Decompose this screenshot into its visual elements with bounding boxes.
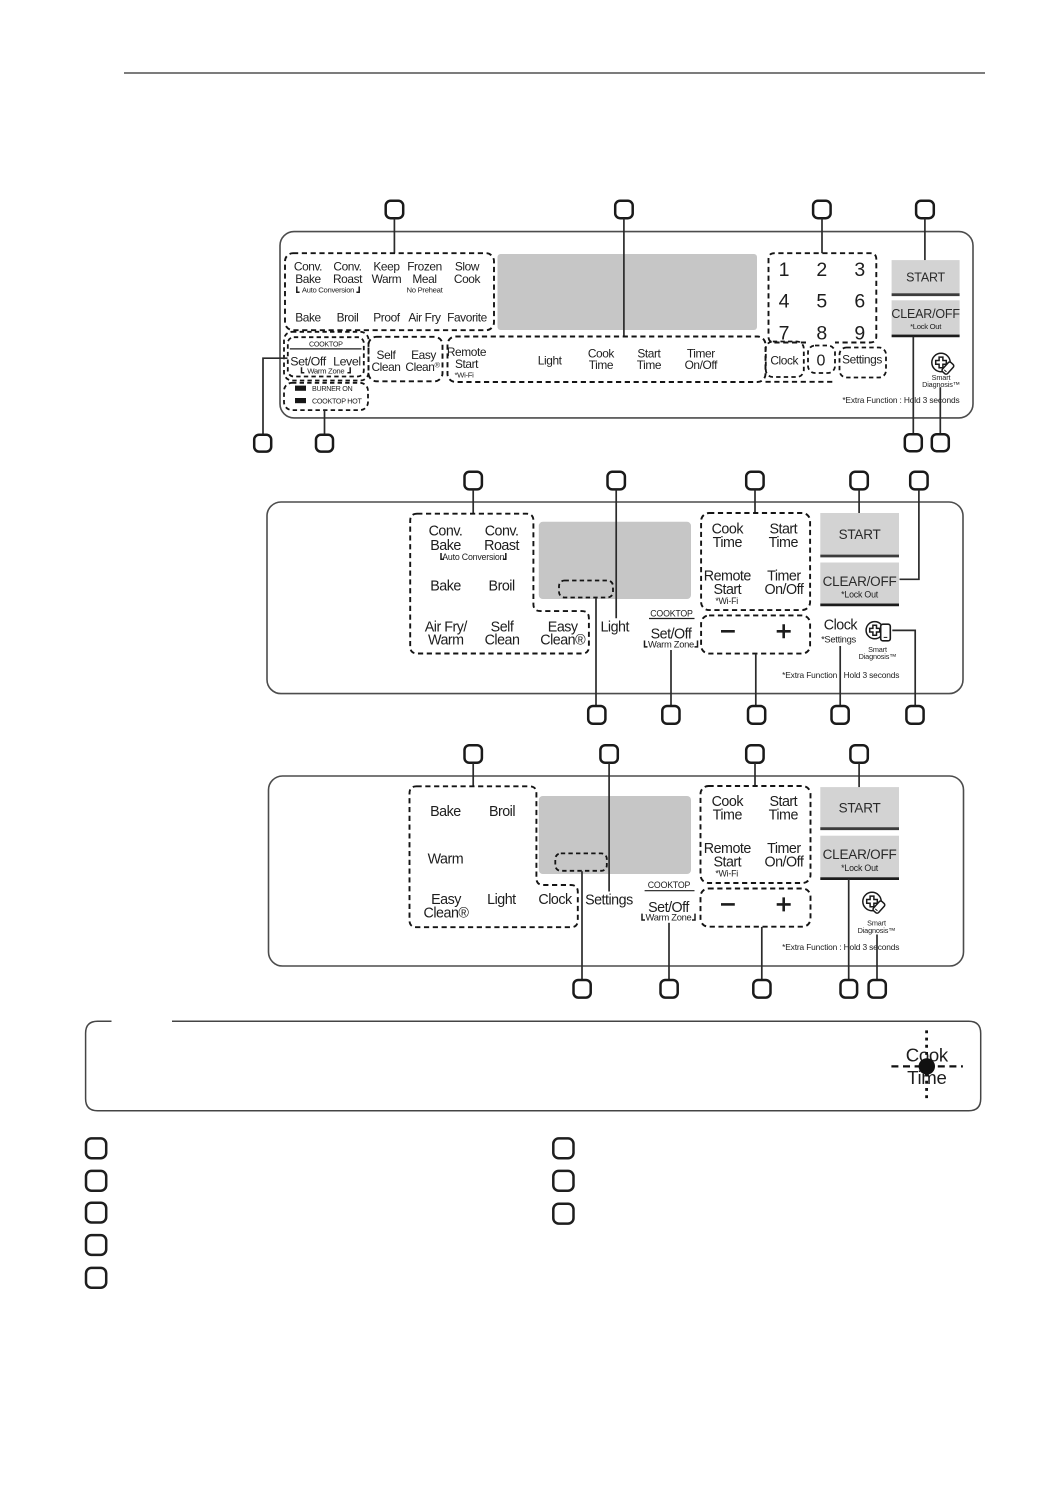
svg-text:Clean: Clean	[485, 633, 520, 649]
svg-text:BURNER ON: BURNER ON	[312, 384, 353, 393]
svg-text:Warm Zone: Warm Zone	[646, 912, 692, 923]
svg-text:6: 6	[854, 291, 865, 313]
svg-text:CLEAR/OFF: CLEAR/OFF	[823, 574, 897, 589]
svg-text:Time: Time	[713, 535, 743, 551]
svg-text:Clock: Clock	[824, 618, 859, 634]
svg-text:Broil: Broil	[489, 579, 515, 595]
svg-text:Settings: Settings	[842, 353, 882, 367]
svg-text:Warm: Warm	[428, 851, 464, 867]
svg-text:Time: Time	[637, 358, 662, 372]
svg-text:On/Off: On/Off	[685, 358, 719, 372]
svg-text:Warm Zone: Warm Zone	[648, 639, 694, 650]
svg-text:7: 7	[779, 322, 790, 344]
svg-text:*Settings: *Settings	[821, 634, 856, 645]
svg-text:*Lock Out: *Lock Out	[910, 322, 942, 331]
svg-text:Light: Light	[600, 619, 629, 635]
svg-text:Time: Time	[769, 535, 799, 551]
svg-text:Broil: Broil	[489, 804, 515, 820]
svg-text:Conv.: Conv.	[485, 523, 519, 539]
svg-text:COOKTOP HOT: COOKTOP HOT	[312, 396, 362, 405]
svg-text:CLEAR/OFF: CLEAR/OFF	[891, 307, 960, 321]
svg-text:COOKTOP: COOKTOP	[648, 880, 691, 890]
svg-text:*Wi-Fi: *Wi-Fi	[715, 869, 738, 879]
svg-text:Conv.: Conv.	[429, 523, 463, 539]
svg-text:2: 2	[816, 259, 827, 281]
svg-text:Bake: Bake	[295, 310, 321, 324]
svg-text:No Preheat: No Preheat	[407, 286, 444, 295]
svg-text:Warm: Warm	[428, 633, 464, 649]
svg-text:Clean®: Clean®	[424, 905, 470, 921]
svg-text:*Extra Function : Hold 3 secon: *Extra Function : Hold 3 seconds	[782, 942, 899, 952]
svg-text:START: START	[839, 801, 881, 816]
svg-text:Warm Zone: Warm Zone	[307, 366, 344, 375]
svg-text:On/Off: On/Off	[764, 582, 803, 598]
svg-text:Bake: Bake	[430, 804, 461, 820]
svg-text:On/Off: On/Off	[764, 855, 803, 871]
svg-text:3: 3	[854, 259, 865, 281]
svg-text:Bake: Bake	[295, 272, 321, 286]
svg-text:Settings: Settings	[585, 892, 633, 908]
svg-text:Diagnosis™: Diagnosis™	[859, 652, 897, 661]
svg-text:*Wi-Fi: *Wi-Fi	[715, 596, 738, 606]
svg-text:Roast: Roast	[333, 272, 363, 286]
svg-text:Auto Conversion: Auto Conversion	[442, 552, 504, 562]
svg-text:START: START	[906, 270, 945, 284]
svg-text:*Wi-Fi: *Wi-Fi	[454, 371, 474, 380]
svg-text:CLEAR/OFF: CLEAR/OFF	[823, 847, 897, 862]
svg-text:Bake: Bake	[430, 579, 461, 595]
svg-text:Clean®: Clean®	[540, 633, 586, 649]
svg-text:Warm: Warm	[372, 272, 402, 286]
svg-text:1: 1	[779, 259, 790, 281]
svg-text:*Lock Out: *Lock Out	[841, 863, 879, 873]
svg-text:Broil: Broil	[337, 310, 359, 324]
svg-text:9: 9	[854, 322, 865, 344]
svg-text:Diagnosis™: Diagnosis™	[858, 926, 896, 935]
svg-text:Auto Conversion: Auto Conversion	[302, 286, 354, 295]
svg-text:Light: Light	[487, 892, 516, 908]
svg-text:8: 8	[816, 322, 827, 344]
svg-text:Air Fry: Air Fry	[408, 310, 441, 324]
svg-text:Meal: Meal	[412, 272, 436, 286]
svg-text:Cook: Cook	[454, 272, 481, 286]
svg-text:Time: Time	[769, 808, 799, 824]
svg-text:Light: Light	[538, 353, 563, 367]
svg-text:Clock: Clock	[770, 353, 798, 367]
svg-text:COOKTOP: COOKTOP	[309, 340, 343, 349]
svg-text:*Lock Out: *Lock Out	[841, 590, 879, 600]
svg-text:Clean: Clean	[371, 360, 400, 374]
svg-text:0: 0	[817, 353, 826, 370]
svg-text:Proof: Proof	[373, 310, 401, 324]
svg-text:Start: Start	[455, 357, 479, 371]
svg-text:5: 5	[816, 291, 827, 313]
svg-text:COOKTOP: COOKTOP	[650, 608, 693, 618]
svg-text:START: START	[839, 527, 881, 542]
svg-text:Clock: Clock	[538, 892, 573, 908]
svg-text:Time: Time	[713, 808, 743, 824]
svg-text:4: 4	[779, 291, 790, 313]
svg-text:Favorite: Favorite	[447, 310, 488, 324]
svg-text:*Extra Function : Hold 3 secon: *Extra Function : Hold 3 seconds	[842, 395, 959, 405]
svg-text:Time: Time	[589, 358, 614, 372]
